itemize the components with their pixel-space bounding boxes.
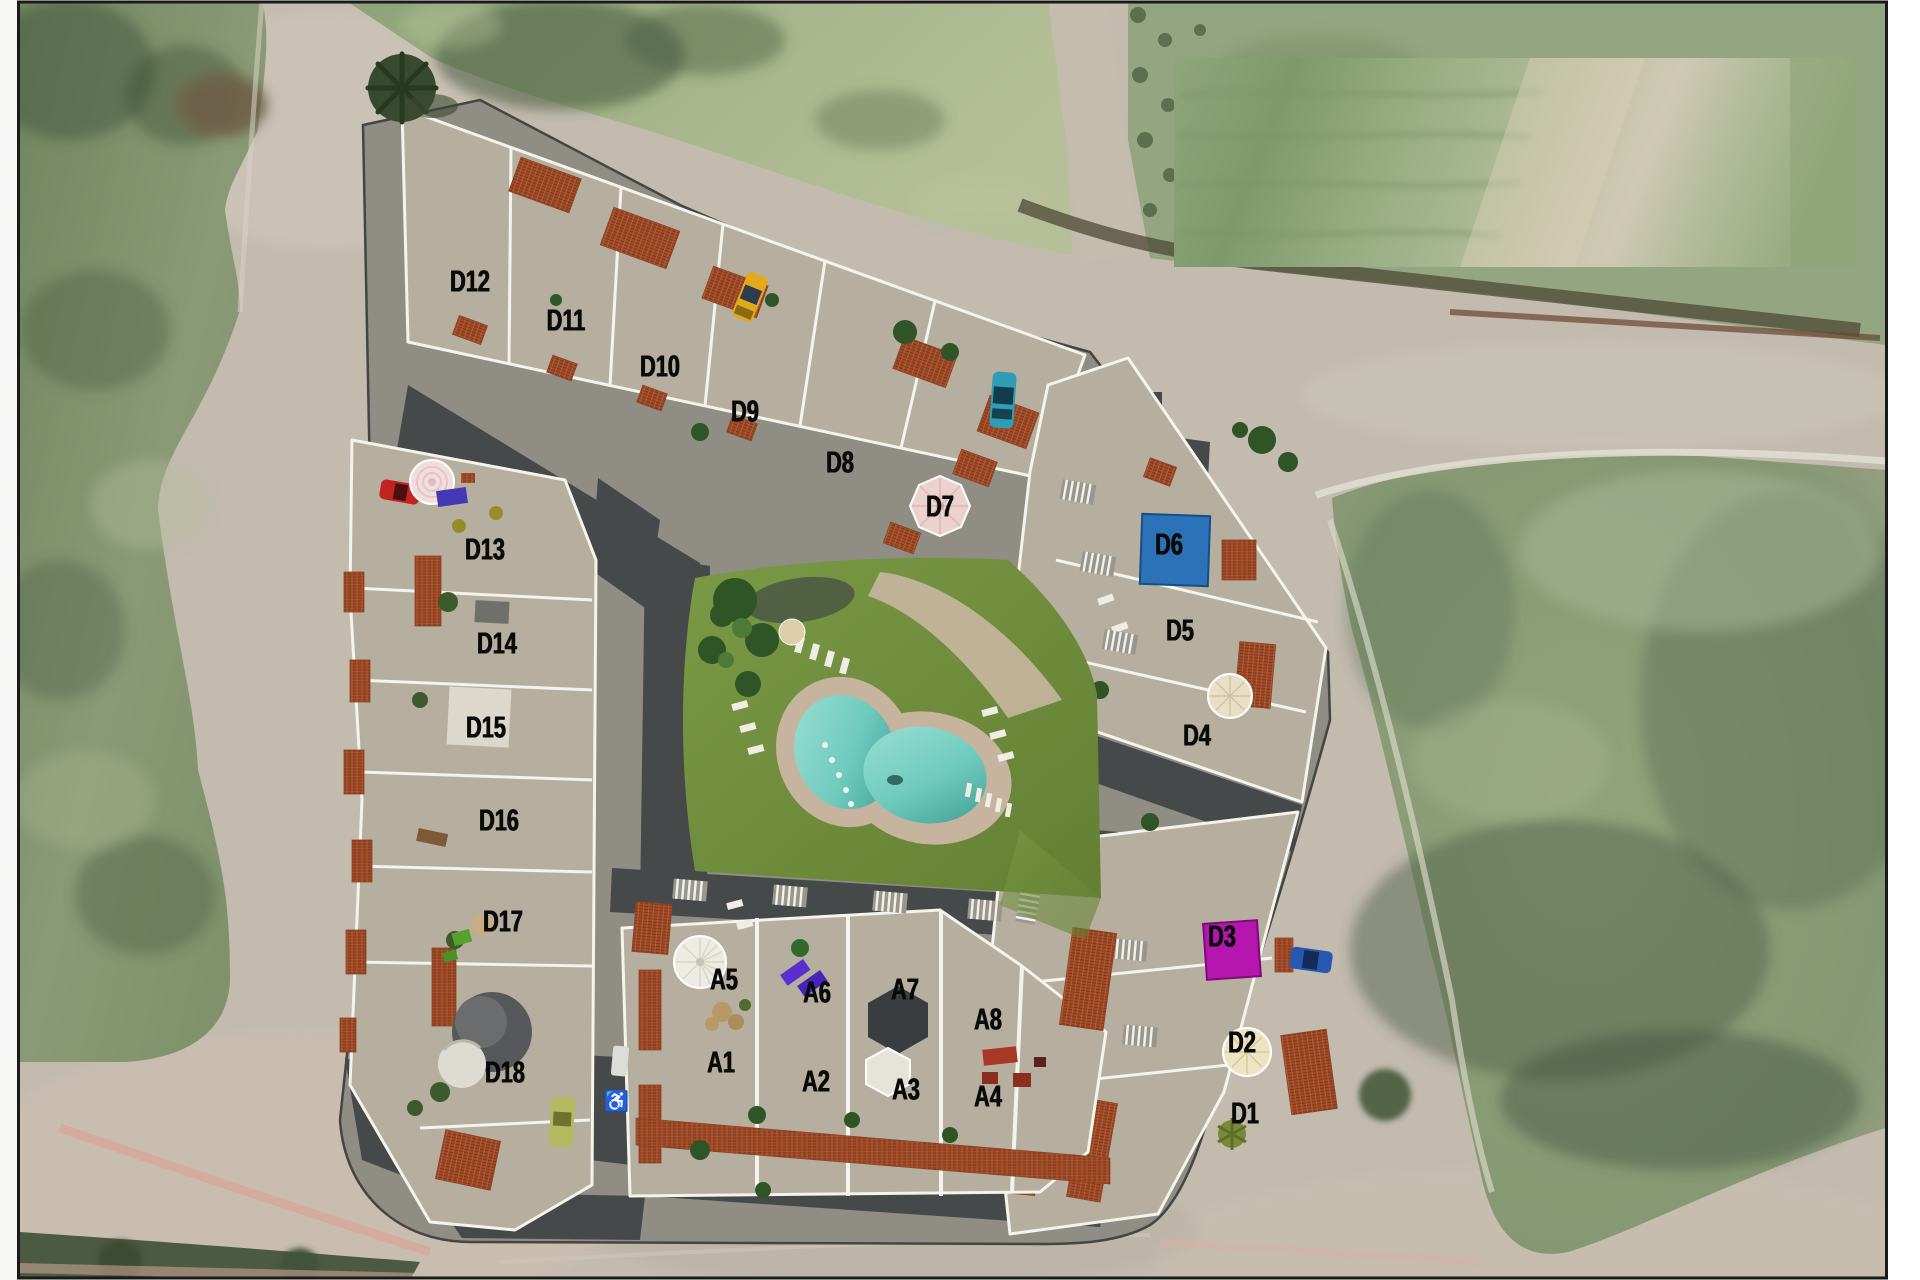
d4-parasol (1208, 674, 1252, 718)
cyan-car (989, 371, 1017, 429)
a5-parasol (674, 936, 726, 988)
white-van (611, 1045, 630, 1076)
aerial-scene: ♿ (0, 0, 1920, 1280)
d14-rooflight (474, 600, 509, 624)
pasted-image-patch (1174, 58, 1856, 267)
d7-parasol (910, 476, 970, 536)
lime-car (549, 1096, 576, 1147)
d15-roof-patch (447, 686, 512, 747)
site-plan-image: ♿ (0, 0, 1920, 1280)
handicap-parking-icon: ♿ (604, 1089, 629, 1113)
d3-rooftop-pool (1203, 920, 1261, 980)
swimmer (887, 775, 903, 785)
d2-parasol (1223, 1028, 1271, 1076)
d6-rooftop-pool (1140, 514, 1210, 586)
